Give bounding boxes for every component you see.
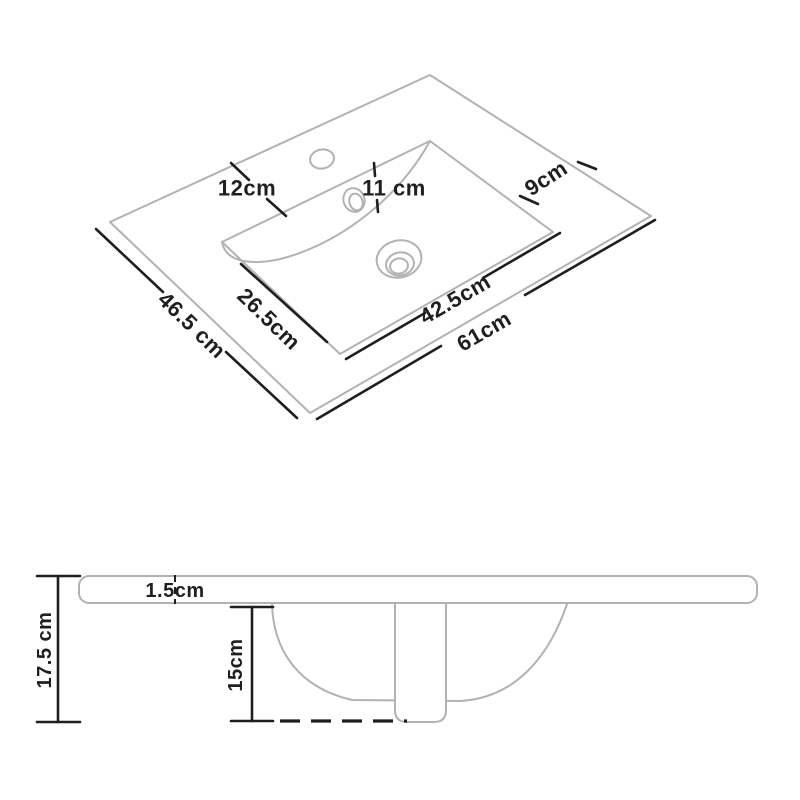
drain-inner xyxy=(389,257,410,275)
sink-dimensions-diagram: 12cm 11 cm 9cm 26.5cm 46.5 cm 42.5cm 61 xyxy=(0,0,800,800)
basin-wall-curve xyxy=(222,141,430,262)
dim-1-5cm-label: 1.5cm xyxy=(145,580,204,602)
dim-9cm-label: 9cm xyxy=(520,155,572,201)
dim-42-5cm-line-1 xyxy=(346,313,425,359)
dim-46-5cm-line-2 xyxy=(226,352,297,418)
dim-26-5cm-label: 26.5cm xyxy=(232,283,305,355)
dim-11cm-tick-lower xyxy=(377,200,378,212)
dim-61cm-line-1 xyxy=(317,346,441,419)
faucet-hole xyxy=(309,148,336,171)
top-view: 12cm 11 cm 9cm 26.5cm 46.5 cm 42.5cm 61 xyxy=(96,75,655,419)
dim-9cm-tick-outer xyxy=(578,162,596,169)
diagram-page: 12cm 11 cm 9cm 26.5cm 46.5 cm 42.5cm 61 xyxy=(0,0,800,800)
dim-46-5cm-line-1 xyxy=(96,229,163,292)
dim-11cm-label: 11 cm xyxy=(362,176,426,201)
drain-pipe xyxy=(395,603,446,722)
dim-61cm-line-2 xyxy=(525,220,655,295)
dim-17-5cm-label: 17.5 cm xyxy=(34,612,56,689)
side-view: 1.5cm 17.5 cm 15cm xyxy=(34,575,757,722)
countertop-outline xyxy=(110,75,651,413)
dim-42-5cm-line-2 xyxy=(483,233,560,278)
dim-11cm-tick-upper xyxy=(374,163,375,176)
dim-12cm-label: 12cm xyxy=(218,176,276,201)
dim-12cm-tick-inner xyxy=(267,199,286,216)
dim-15cm-label: 15cm xyxy=(225,638,247,691)
